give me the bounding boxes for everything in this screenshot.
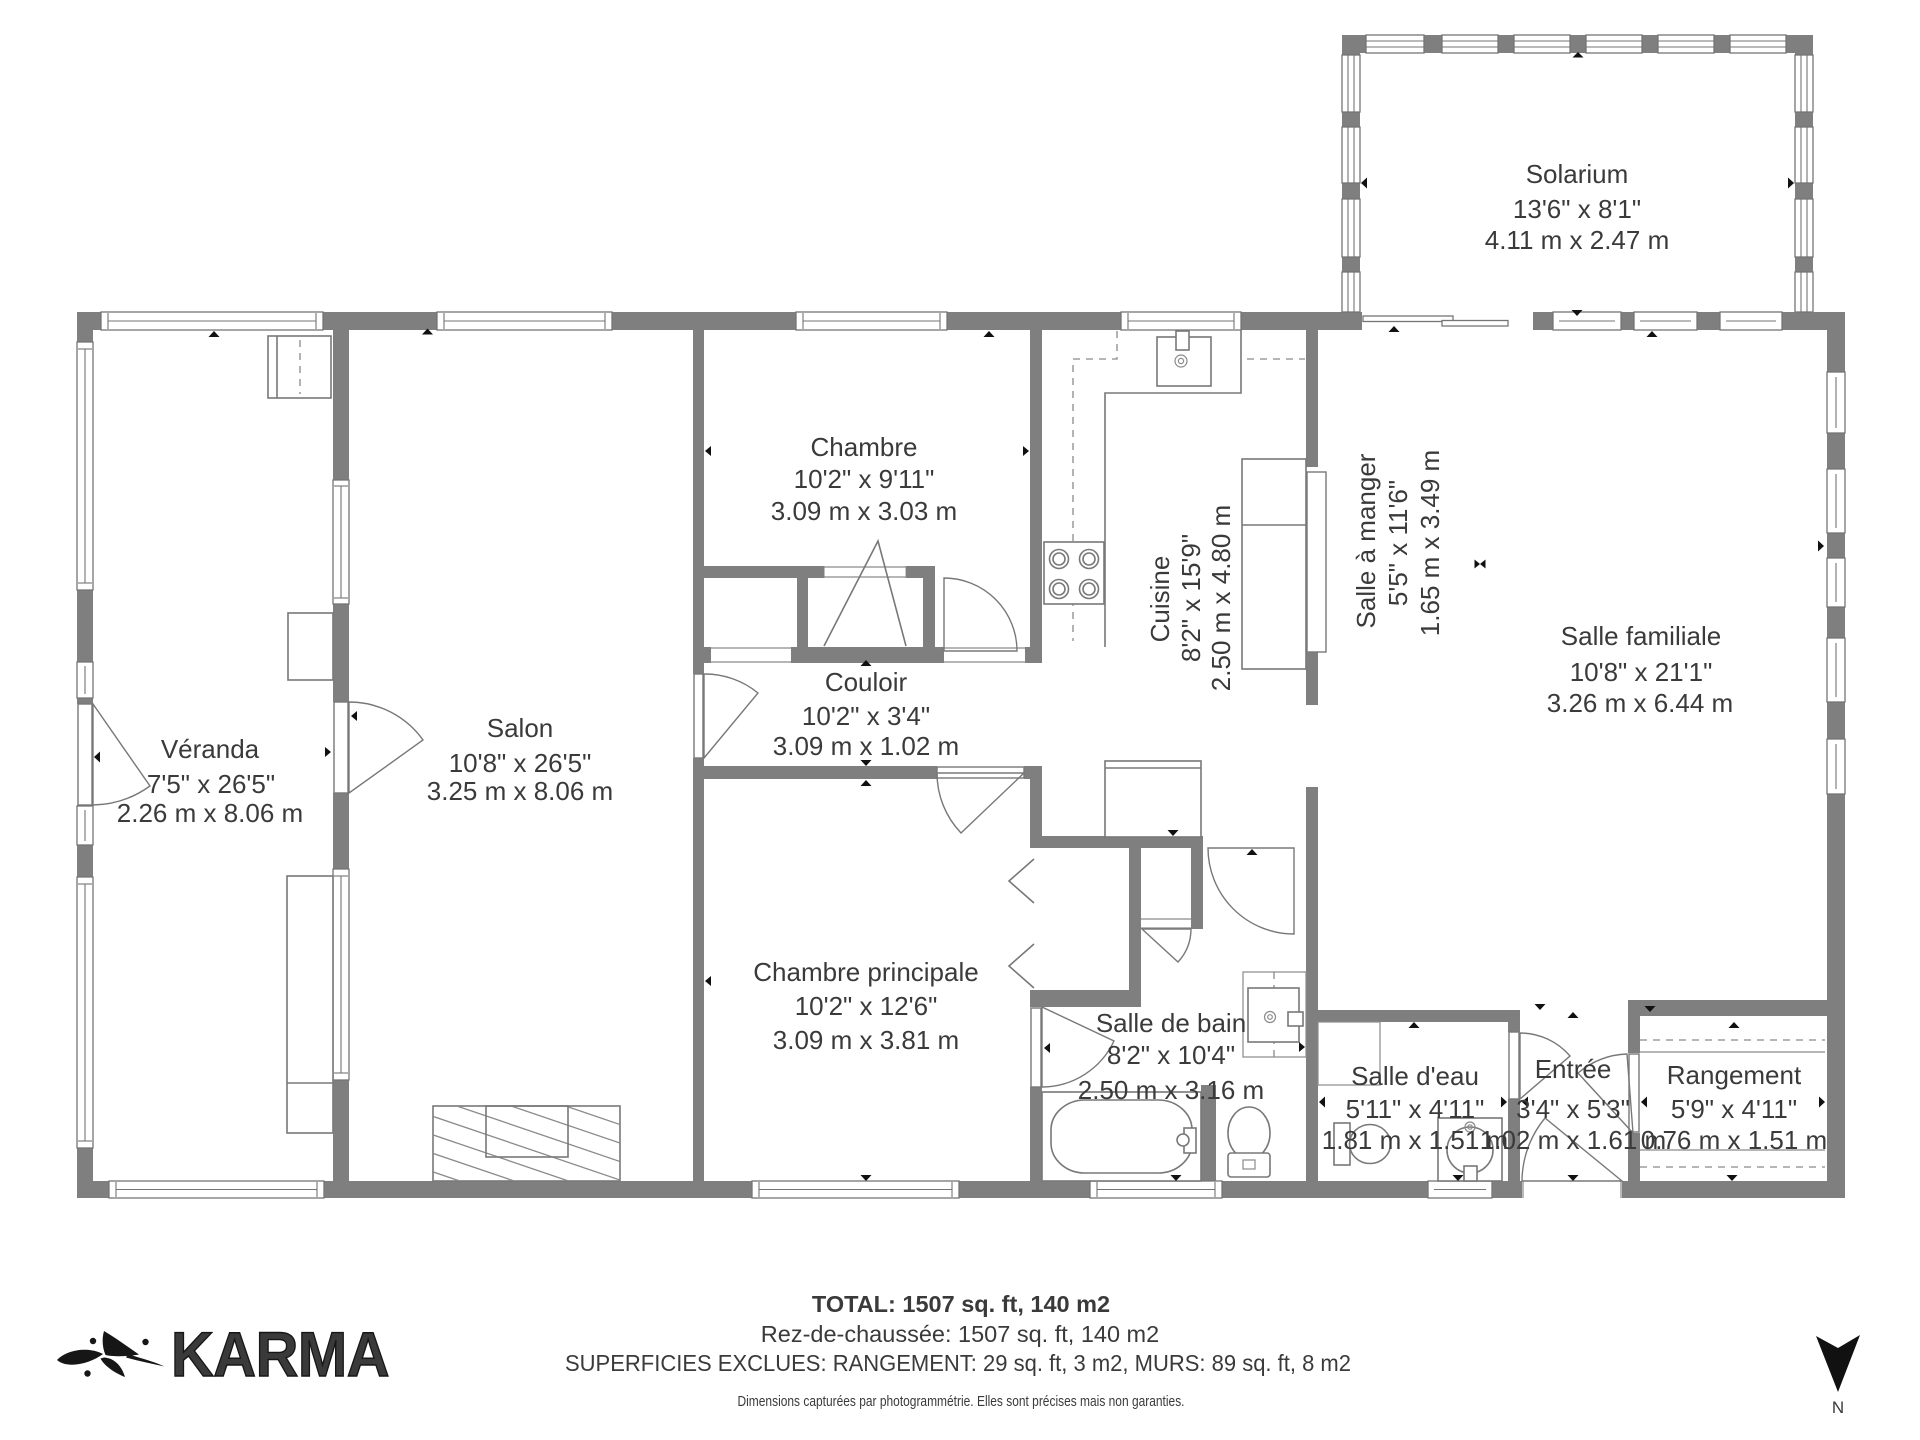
svg-text:10'2" x 12'6": 10'2" x 12'6" — [795, 991, 938, 1021]
svg-text:Salle d'eau: Salle d'eau — [1351, 1061, 1479, 1091]
svg-text:TOTAL: 1507 sq. ft, 140 m2: TOTAL: 1507 sq. ft, 140 m2 — [812, 1291, 1110, 1317]
svg-text:Chambre: Chambre — [811, 432, 918, 462]
svg-text:10'8" x 26'5": 10'8" x 26'5" — [449, 748, 592, 778]
svg-text:Salle familiale: Salle familiale — [1561, 621, 1721, 651]
svg-text:Cuisine: Cuisine — [1145, 556, 1175, 643]
svg-text:5'11" x 4'11": 5'11" x 4'11" — [1346, 1094, 1485, 1124]
svg-text:Chambre principale: Chambre principale — [753, 957, 978, 987]
svg-text:10'8" x 21'1": 10'8" x 21'1" — [1570, 657, 1713, 687]
svg-text:Dimensions capturées par photo: Dimensions capturées par photogrammétrie… — [738, 1394, 1185, 1410]
svg-text:Entrée: Entrée — [1535, 1054, 1612, 1084]
svg-text:Rangement: Rangement — [1667, 1060, 1802, 1090]
svg-text:4.11 m x 2.47 m: 4.11 m x 2.47 m — [1485, 225, 1670, 255]
svg-text:3.09 m x 1.02 m: 3.09 m x 1.02 m — [773, 731, 959, 761]
svg-text:10'2" x 3'4": 10'2" x 3'4" — [802, 701, 930, 731]
svg-text:5'9" x 4'11": 5'9" x 4'11" — [1671, 1094, 1797, 1124]
svg-text:3.09 m x 3.03 m: 3.09 m x 3.03 m — [771, 496, 957, 526]
svg-text:Salon: Salon — [487, 713, 554, 743]
svg-text:2.50 m x 3.16 m: 2.50 m x 3.16 m — [1078, 1075, 1264, 1105]
svg-text:SUPERFICIES EXCLUES: RANGEMENT: SUPERFICIES EXCLUES: RANGEMENT: 29 sq. f… — [565, 1350, 1351, 1376]
svg-text:7'5" x 26'5": 7'5" x 26'5" — [147, 769, 275, 799]
svg-text:13'6" x 8'1": 13'6" x 8'1" — [1513, 194, 1641, 224]
svg-text:Salle de bain: Salle de bain — [1096, 1008, 1246, 1038]
svg-text:N: N — [1832, 1398, 1844, 1417]
svg-text:Véranda: Véranda — [161, 734, 260, 764]
svg-text:Solarium: Solarium — [1526, 159, 1629, 189]
svg-text:10'2" x 9'11": 10'2" x 9'11" — [794, 464, 935, 494]
svg-text:3.26 m x 6.44 m: 3.26 m x 6.44 m — [1547, 688, 1733, 718]
svg-text:2.26 m x 8.06 m: 2.26 m x 8.06 m — [117, 798, 303, 828]
svg-text:0.76 m x 1.51 m: 0.76 m x 1.51 m — [1641, 1125, 1827, 1155]
svg-text:8'2" x 10'4": 8'2" x 10'4" — [1107, 1040, 1235, 1070]
svg-text:5'5" x 11'6": 5'5" x 11'6" — [1383, 480, 1413, 606]
svg-text:1.02 m x 1.61 m: 1.02 m x 1.61 m — [1480, 1125, 1666, 1155]
svg-text:3.09 m x 3.81 m: 3.09 m x 3.81 m — [773, 1025, 959, 1055]
svg-text:1.65 m x 3.49 m: 1.65 m x 3.49 m — [1415, 450, 1445, 636]
svg-text:Couloir: Couloir — [825, 667, 908, 697]
svg-text:3'4" x 5'3": 3'4" x 5'3" — [1516, 1094, 1630, 1124]
svg-text:8'2" x 15'9": 8'2" x 15'9" — [1176, 534, 1206, 662]
svg-text:KARMA: KARMA — [171, 1319, 389, 1389]
svg-text:Rez-de-chaussée: 1507 sq. ft,: Rez-de-chaussée: 1507 sq. ft, 140 m2 — [761, 1321, 1159, 1347]
svg-text:Salle à manger: Salle à manger — [1351, 453, 1381, 628]
svg-text:2.50 m x 4.80 m: 2.50 m x 4.80 m — [1206, 505, 1236, 691]
svg-text:3.25 m x 8.06 m: 3.25 m x 8.06 m — [427, 776, 613, 806]
